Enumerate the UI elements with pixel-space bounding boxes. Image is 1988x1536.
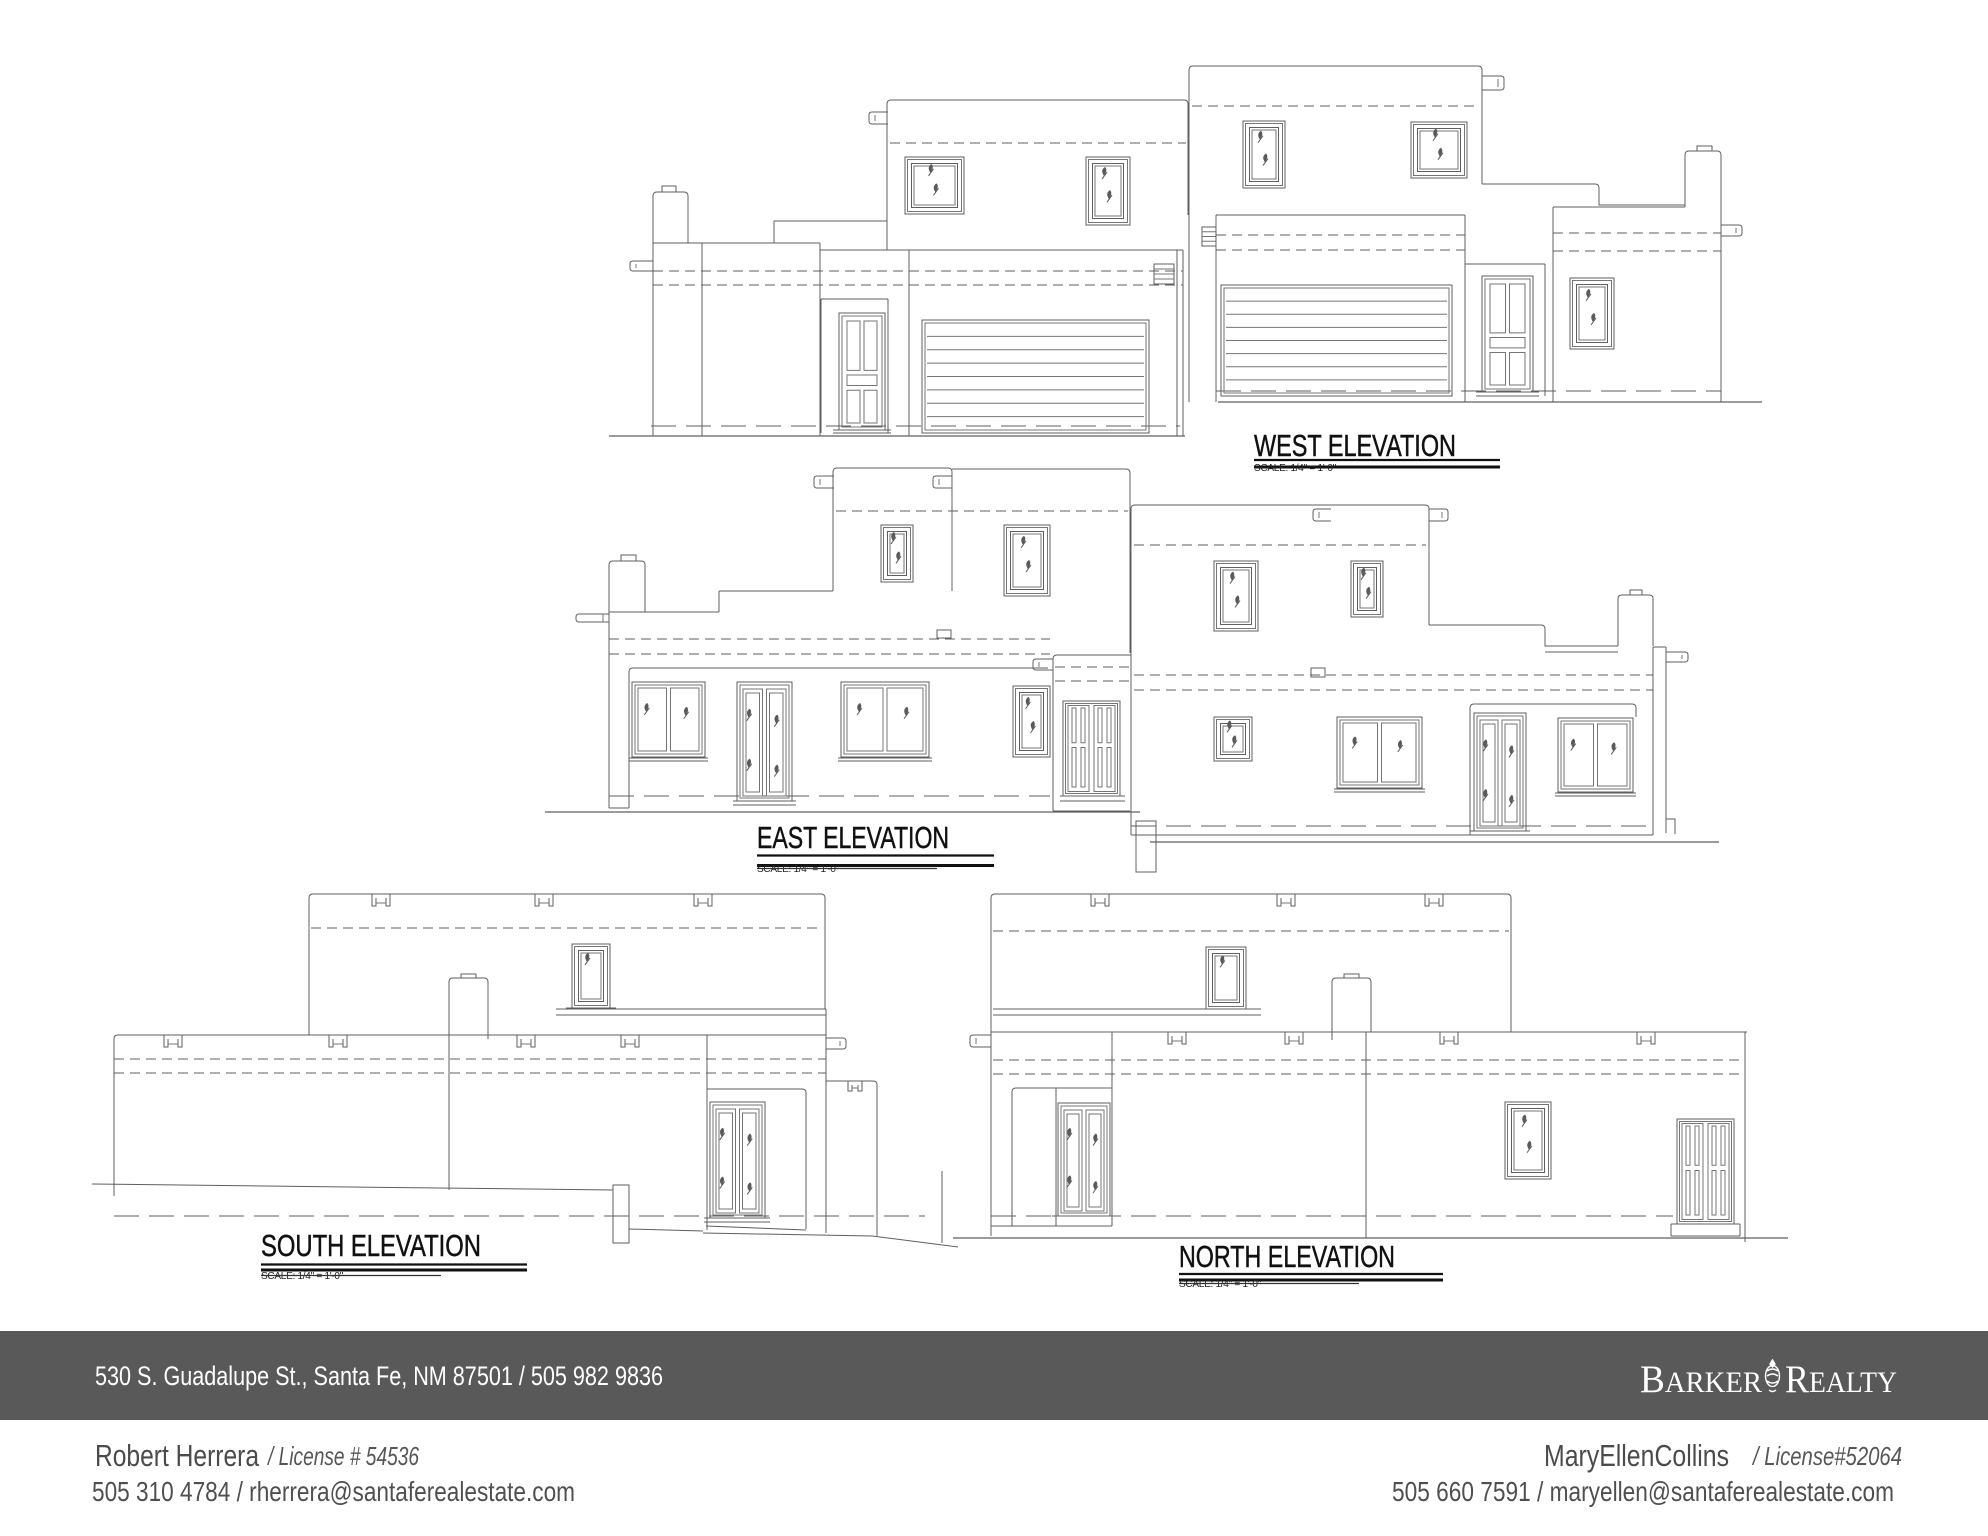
svg-text:505 310 4784 / rherrera@santaf: 505 310 4784 / rherrera@santaferealestat… (92, 1476, 575, 1507)
svg-text:SOUTH ELEVATION: SOUTH ELEVATION (261, 1228, 481, 1263)
svg-text:505 660 7591 / maryellen@santa: 505 660 7591 / maryellen@santaferealesta… (1392, 1476, 1894, 1507)
svg-text:/ License#52064: / License#52064 (1751, 1441, 1902, 1471)
svg-text:NORTH ELEVATION: NORTH ELEVATION (1179, 1239, 1395, 1274)
svg-text:EAST ELEVATION: EAST ELEVATION (757, 820, 949, 855)
svg-text:530 S. Guadalupe St., Santa Fe: 530 S. Guadalupe St., Santa Fe, NM 87501… (95, 1361, 663, 1391)
svg-text:SCALE: 1/4" = 1'-0": SCALE: 1/4" = 1'-0" (1254, 462, 1337, 474)
svg-text:WEST ELEVATION: WEST ELEVATION (1254, 428, 1456, 463)
svg-text:MaryEllenCollins: MaryEllenCollins (1544, 1438, 1729, 1473)
svg-text:/ License # 54536: / License # 54536 (267, 1441, 420, 1471)
svg-text:Robert Herrera: Robert Herrera (95, 1438, 260, 1473)
